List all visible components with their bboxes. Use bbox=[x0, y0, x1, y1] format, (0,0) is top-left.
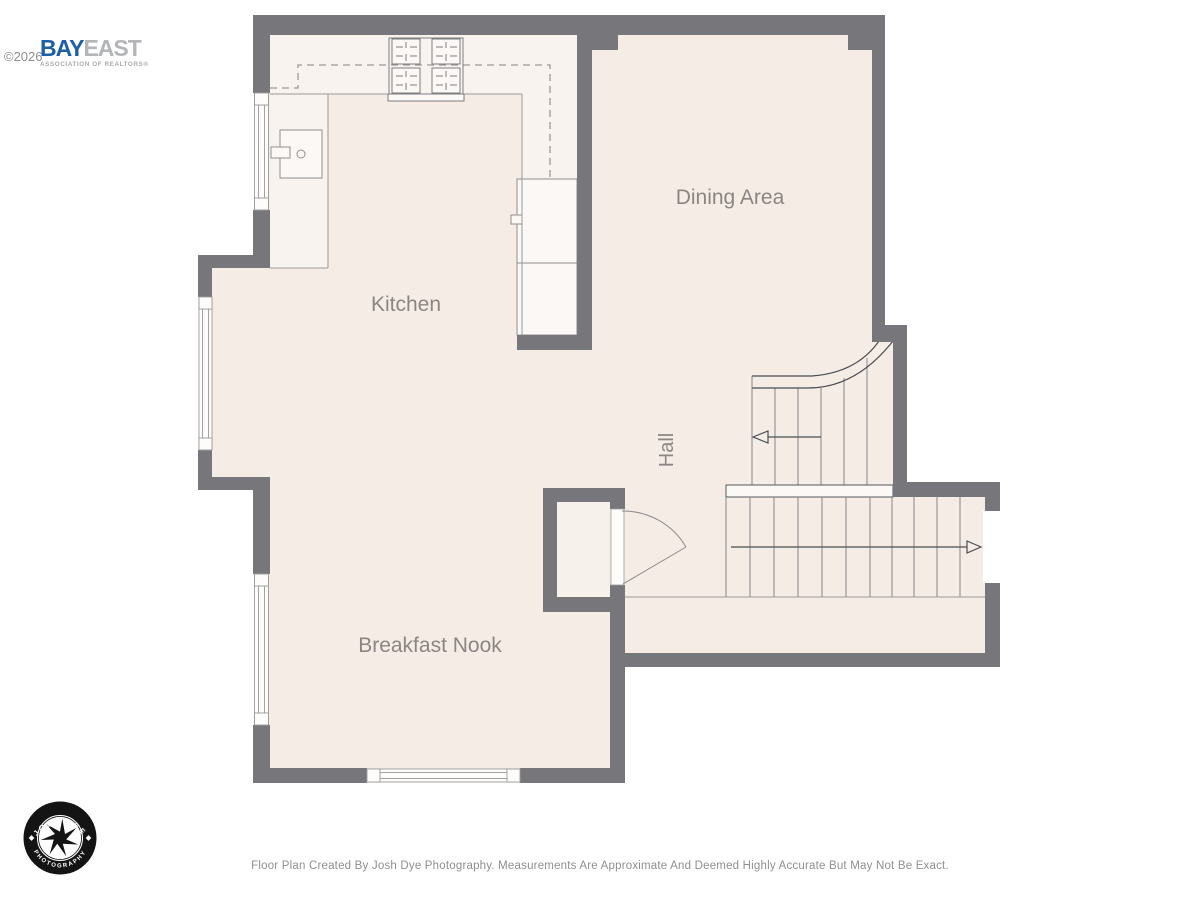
wall-segment bbox=[198, 255, 270, 268]
wall-segment bbox=[872, 325, 907, 342]
floor-plan-page: ©2026 BAYEAST ASSOCIATION OF REALTORS® bbox=[0, 0, 1200, 900]
wall-segment bbox=[610, 488, 625, 509]
stair-exit-opening bbox=[983, 511, 1001, 583]
wall-segment bbox=[577, 15, 592, 350]
wall-segment bbox=[520, 768, 625, 783]
room-label-kitchen: Kitchen bbox=[371, 293, 441, 316]
window bbox=[255, 574, 269, 725]
wall-segment bbox=[253, 768, 367, 783]
wall-segment bbox=[198, 450, 212, 477]
room-label-dining-area: Dining Area bbox=[676, 186, 785, 209]
stair-landing-rail bbox=[726, 485, 893, 497]
wall-segment bbox=[253, 15, 885, 35]
wall-segment bbox=[253, 15, 270, 93]
wall-segment bbox=[893, 342, 907, 484]
room-label-breakfast-nook: Breakfast Nook bbox=[358, 634, 502, 657]
wall-segment bbox=[517, 335, 592, 350]
wall-segment bbox=[893, 482, 1000, 497]
wall-segment bbox=[198, 477, 270, 490]
sliding-door bbox=[367, 769, 520, 782]
closet-interior bbox=[557, 502, 610, 597]
window bbox=[255, 93, 269, 210]
wall-segment bbox=[610, 585, 625, 612]
wall-segment bbox=[622, 653, 1000, 667]
wall-segment bbox=[872, 15, 885, 327]
refrigerator-handle bbox=[511, 215, 522, 224]
footer-disclaimer: Floor Plan Created By Josh Dye Photograp… bbox=[0, 860, 1200, 872]
refrigerator bbox=[517, 179, 577, 263]
wall-segment bbox=[985, 497, 1000, 511]
wall-segment bbox=[610, 612, 625, 783]
pantry-cabinet bbox=[517, 263, 577, 335]
window bbox=[199, 297, 212, 450]
wall-segment bbox=[588, 35, 618, 50]
wall-segment bbox=[198, 268, 212, 297]
wall-segment bbox=[848, 35, 872, 50]
wall-segment bbox=[253, 490, 270, 574]
wall-segment bbox=[543, 488, 557, 612]
floor-plan-drawing: Kitchen Dining Area Hall Breakfast Nook bbox=[0, 0, 1200, 900]
room-label-hall: Hall bbox=[656, 433, 678, 467]
